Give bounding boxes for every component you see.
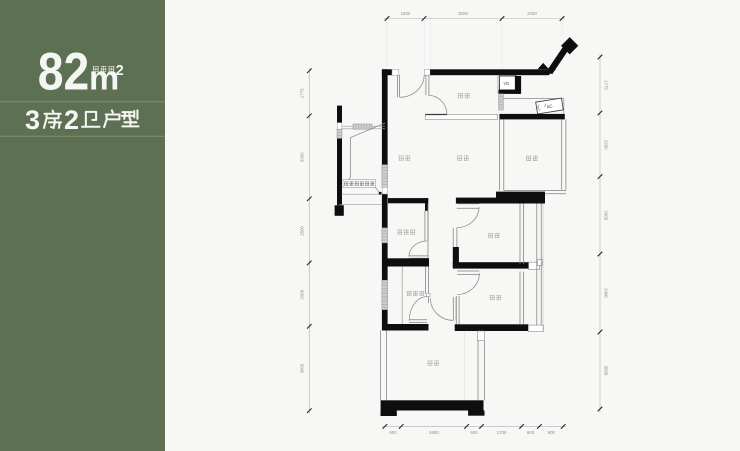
svg-text:1600: 1600 bbox=[401, 11, 411, 16]
svg-text:3000: 3000 bbox=[603, 366, 608, 376]
svg-text:AC: AC bbox=[546, 103, 553, 109]
svg-text:2500: 2500 bbox=[299, 289, 304, 299]
svg-text:2400: 2400 bbox=[527, 11, 537, 16]
svg-text:600: 600 bbox=[389, 430, 397, 435]
svg-text:2600: 2600 bbox=[429, 430, 439, 435]
svg-text:2: 2 bbox=[64, 105, 79, 135]
svg-text:3300: 3300 bbox=[299, 152, 304, 162]
svg-text:YD: YD bbox=[503, 81, 510, 87]
svg-text:600: 600 bbox=[470, 430, 478, 435]
svg-text:2500: 2500 bbox=[299, 225, 304, 235]
svg-text:82: 82 bbox=[38, 43, 90, 102]
svg-text:3000: 3000 bbox=[458, 11, 468, 16]
svg-text:2200: 2200 bbox=[603, 140, 608, 150]
svg-text:600: 600 bbox=[527, 430, 535, 435]
svg-text:2600: 2600 bbox=[603, 210, 608, 220]
svg-text:3000: 3000 bbox=[299, 363, 304, 373]
svg-text:1775: 1775 bbox=[299, 88, 304, 98]
svg-text:1775: 1775 bbox=[603, 80, 608, 90]
svg-text:900: 900 bbox=[548, 430, 556, 435]
svg-text:2: 2 bbox=[116, 63, 124, 79]
svg-text:2400: 2400 bbox=[603, 288, 608, 298]
svg-text:1700: 1700 bbox=[497, 430, 507, 435]
svg-text:3: 3 bbox=[25, 105, 40, 135]
